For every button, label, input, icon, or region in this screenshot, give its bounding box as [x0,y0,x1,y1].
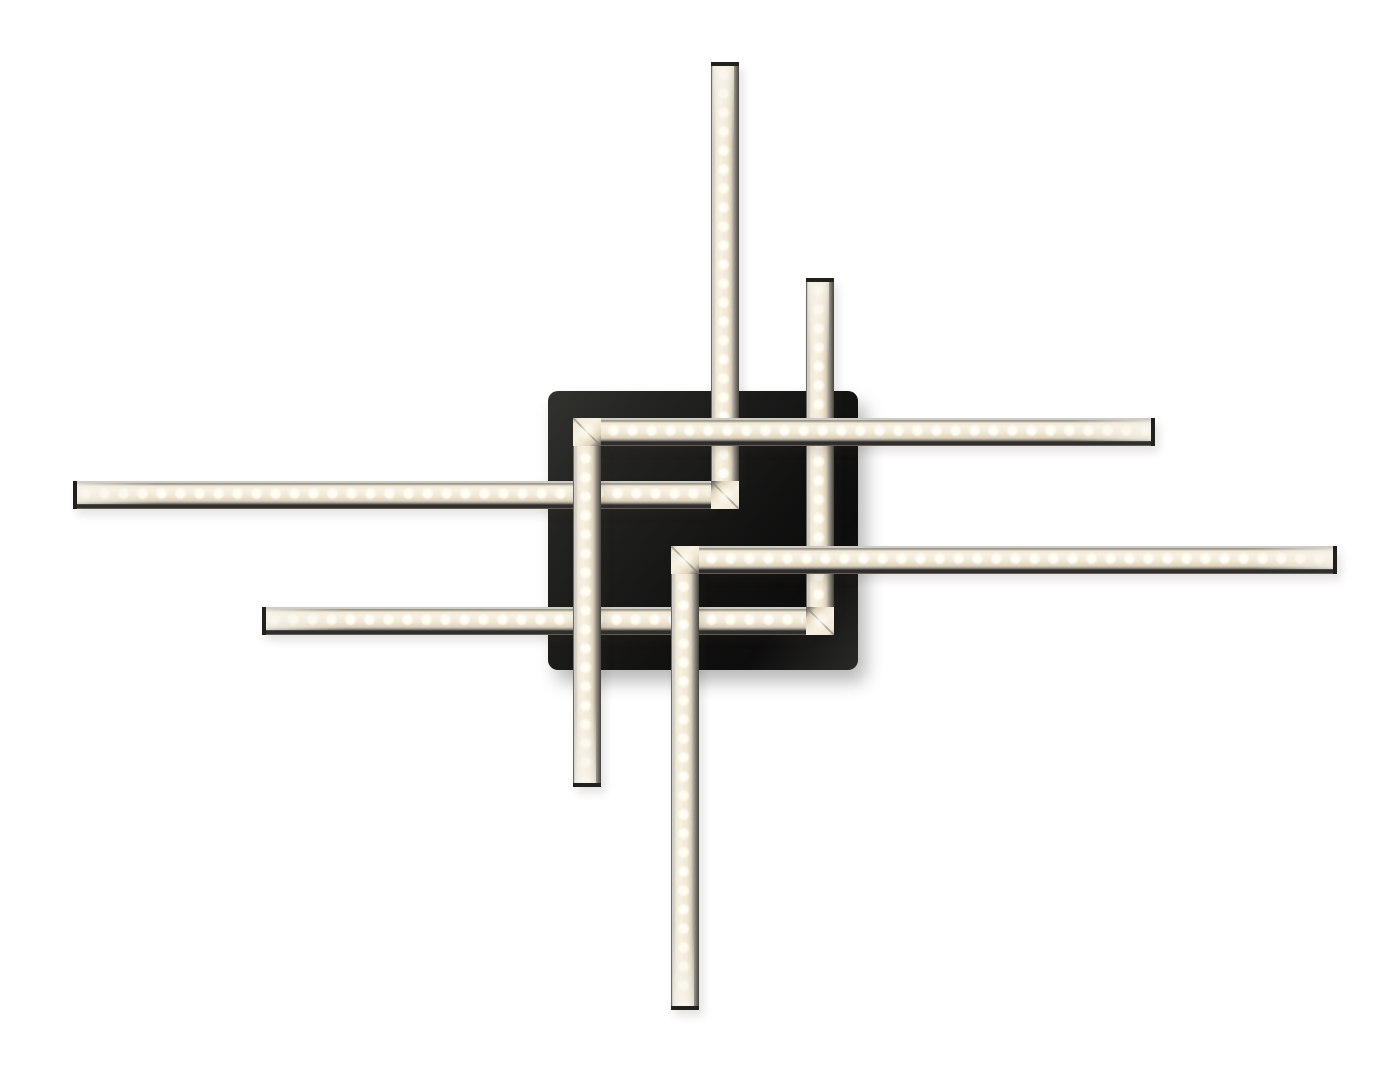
end-cap [1333,546,1337,574]
end-cap [711,62,739,66]
end-cap [806,278,834,282]
end-fade [673,926,694,1006]
end-cap [262,607,266,635]
end-cap [671,1006,699,1010]
led-lamp-a-corner-joint [573,418,601,446]
end-fade [575,703,596,783]
end-fade [1071,420,1151,441]
led-lamp-b-corner-joint [711,481,739,509]
end-fade [1253,548,1333,569]
led-lamp-d-vertical-arm [671,574,699,1010]
led-lamp-c-horizontal-arm [262,607,806,635]
end-fade [713,66,734,146]
end-fade [77,483,157,504]
led-lamp-c-corner-joint [806,607,834,635]
product-photo [0,0,1389,1080]
end-fade [266,609,346,630]
end-fade [808,282,829,362]
led-lamp-a-horizontal-arm [601,418,1155,446]
led-lamp-a-vertical-arm [573,446,601,787]
end-cap [73,481,77,509]
end-cap [573,783,601,787]
led-lamp-d-corner-joint [671,546,699,574]
end-cap [1151,418,1155,446]
led-lamp-d-horizontal-arm [699,546,1337,574]
led-lamp-b-horizontal-arm [73,481,711,509]
